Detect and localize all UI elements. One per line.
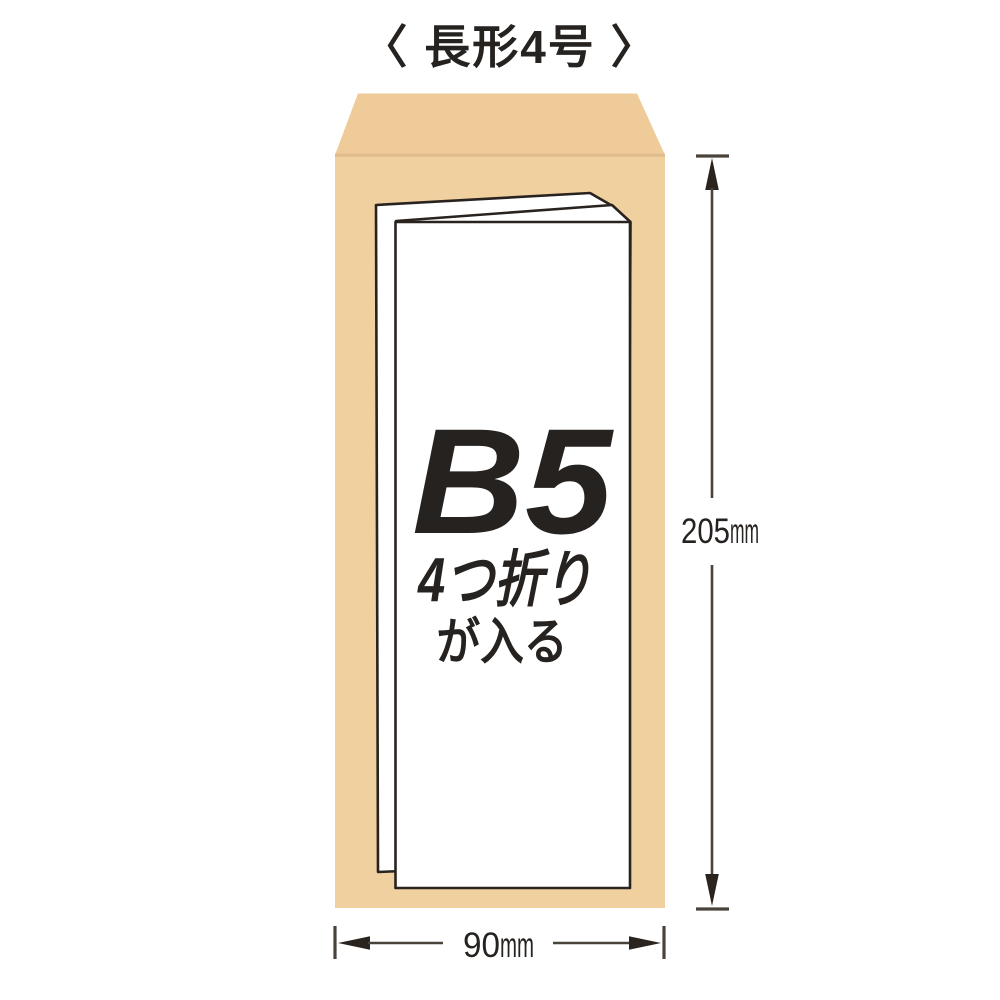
height-dimension-down-arrow-icon (705, 874, 719, 906)
paper-fold-label: 4つ折り (416, 546, 592, 615)
width-dimension-label: 90mm (463, 926, 534, 965)
envelope-flap (335, 94, 665, 156)
diagram-title: 〈 長形4号 〉 (361, 21, 658, 73)
diagram-canvas: 〈 長形4号 〉 B5 4つ折り が入る 205mm (0, 0, 1000, 1000)
envelope-size-diagram: 〈 長形4号 〉 B5 4つ折り が入る 205mm (0, 0, 1000, 1000)
height-dimension-up-arrow-icon (705, 158, 719, 190)
paper-size-label: B5 (412, 397, 615, 565)
width-dimension-left-arrow-icon (338, 936, 370, 950)
width-dimension-right-arrow-icon (629, 936, 661, 950)
folded-paper: B5 4つ折り が入る (376, 193, 631, 888)
width-dimension: 90mm (335, 926, 664, 965)
envelope-fold-crease (335, 154, 665, 157)
paper-fits-label: が入る (437, 614, 568, 670)
height-dimension-label: 205mm (681, 512, 759, 551)
height-dimension: 205mm (681, 156, 759, 909)
